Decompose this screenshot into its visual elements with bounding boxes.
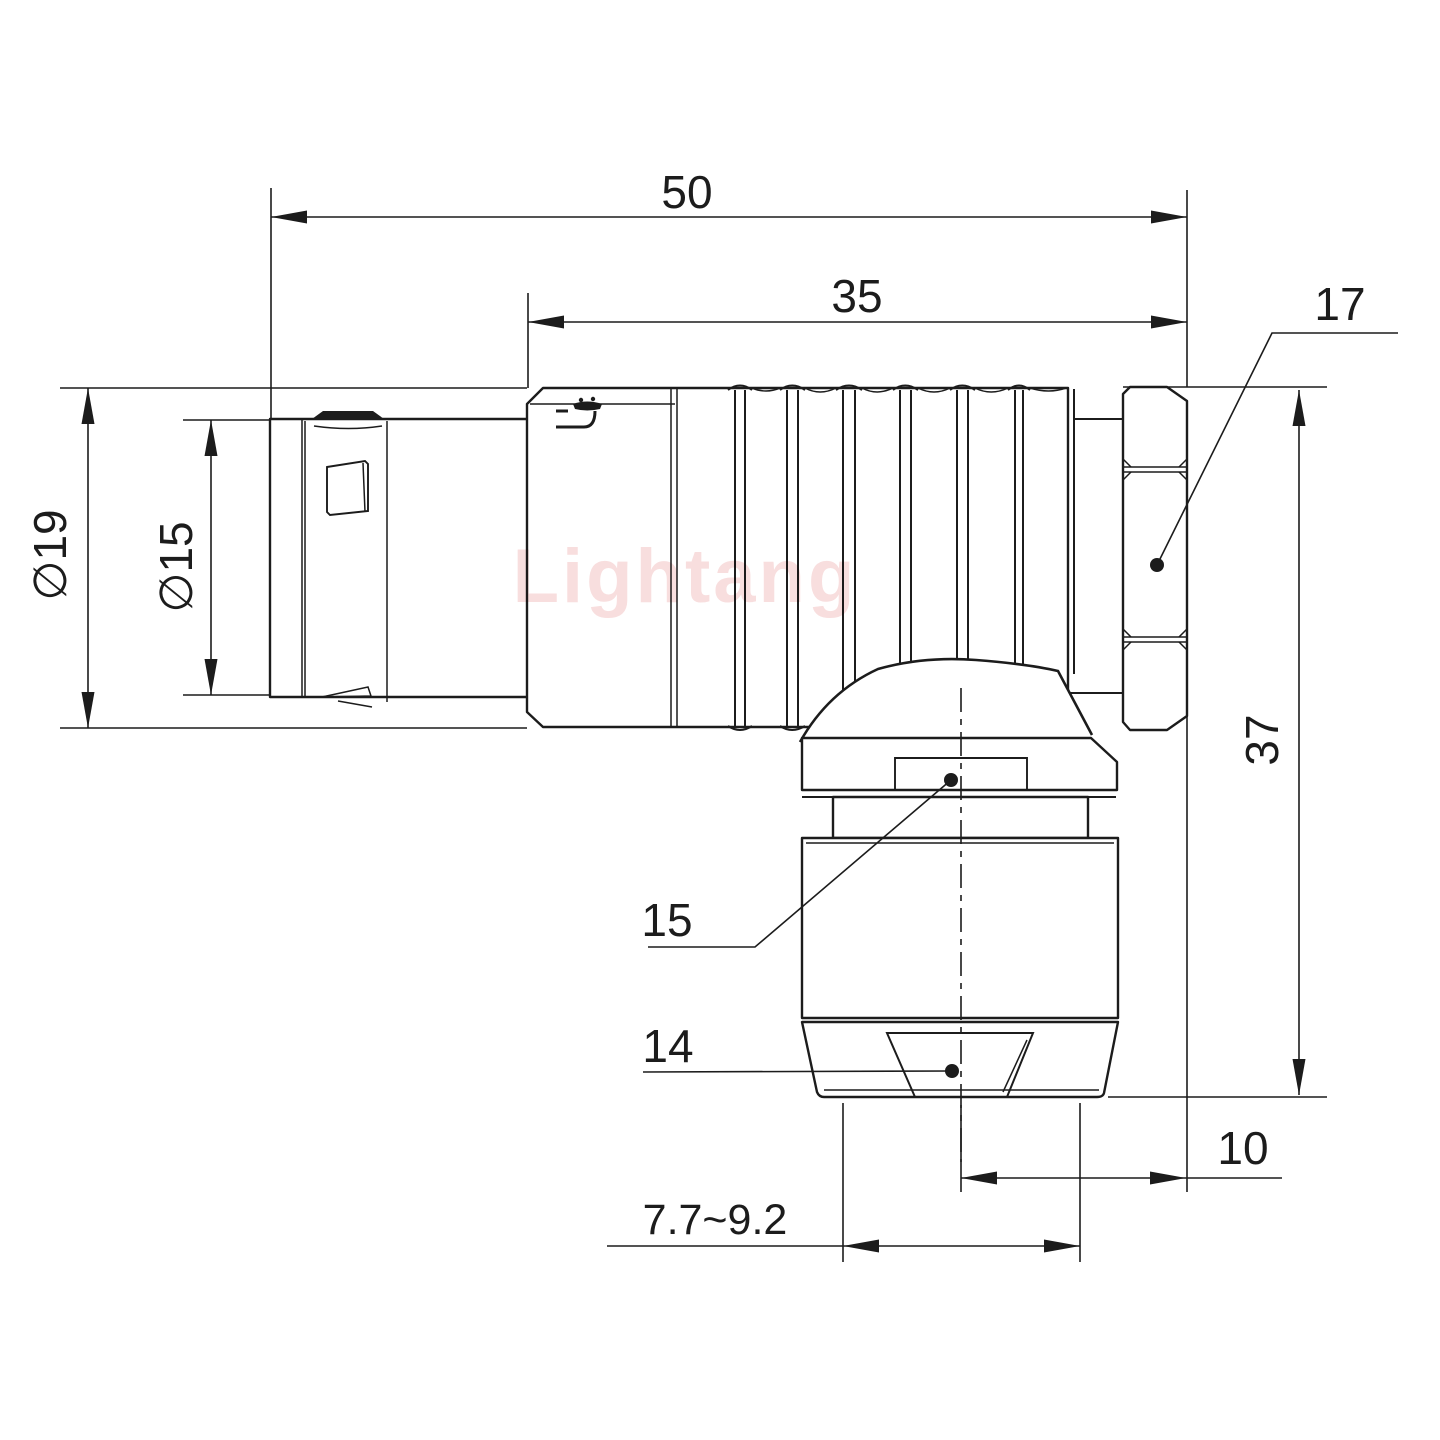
dim-grip-length: 35	[528, 270, 1187, 329]
dim-dia15-label: ∅15	[150, 521, 202, 612]
leader-17: 17	[1157, 278, 1398, 565]
front-barrel	[270, 411, 528, 707]
dim-10-label: 10	[1217, 1122, 1268, 1174]
dim-axis-offset: 10	[961, 1122, 1282, 1185]
leader-15-label: 15	[641, 894, 692, 946]
dim-35-label: 35	[831, 270, 882, 322]
dim-50-label: 50	[661, 166, 712, 218]
cable-bushing	[802, 838, 1118, 1018]
clamp-nose	[802, 1022, 1118, 1097]
dim-37-label: 37	[1236, 714, 1288, 765]
watermark: Lightang	[513, 534, 858, 619]
dim-outer-diameter: ∅19	[24, 388, 95, 728]
dim-mating-diameter: ∅15	[150, 420, 218, 695]
technical-drawing-page: Lightang 50 35 ∅19	[0, 0, 1440, 1440]
latch-bump	[312, 411, 384, 419]
connector-elbow-drawing: Lightang 50 35 ∅19	[0, 0, 1440, 1440]
leader-17-label: 17	[1314, 278, 1365, 330]
cable-range-label: 7.7~9.2	[643, 1196, 788, 1244]
dim-dia19-label: ∅19	[24, 509, 76, 600]
dim-overall-length: 50	[271, 166, 1187, 224]
strain-relief-collar	[802, 738, 1117, 797]
dim-height: 37	[1236, 390, 1306, 1095]
hex-nut	[1123, 387, 1187, 730]
leader-14-label: 14	[642, 1020, 693, 1072]
